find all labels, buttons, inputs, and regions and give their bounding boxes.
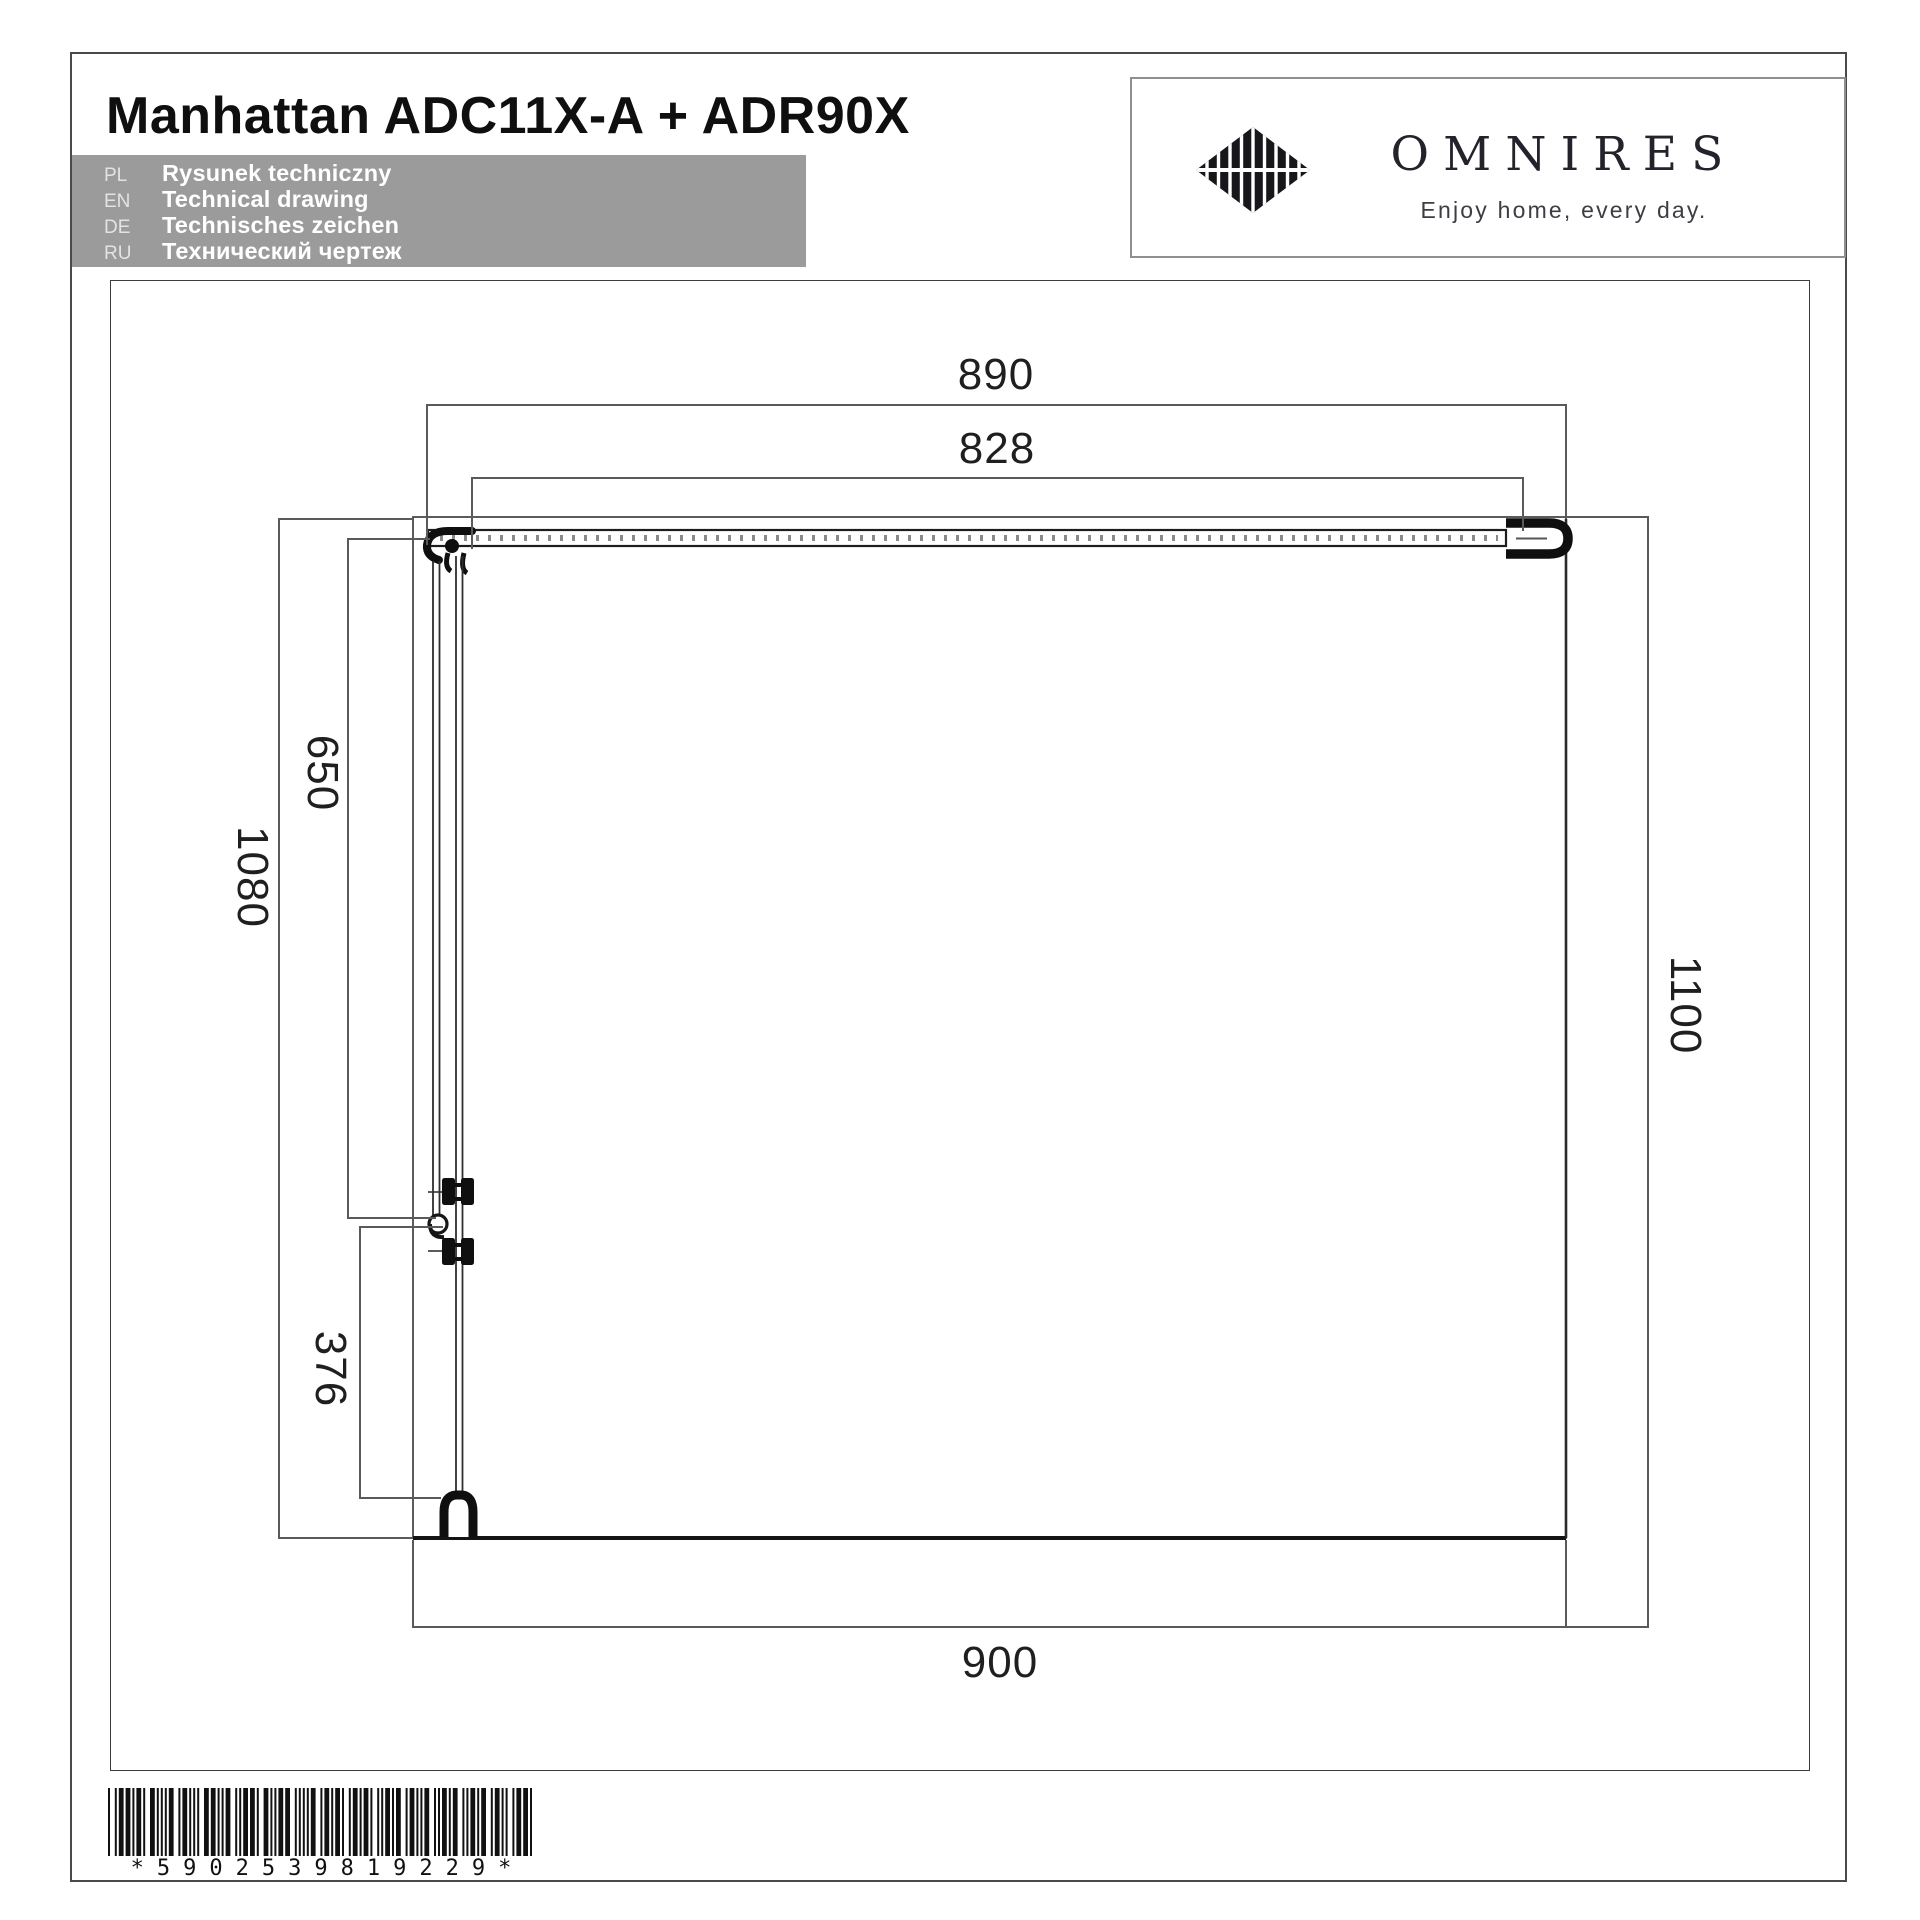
dim-900-line bbox=[413, 1540, 1566, 1627]
dim-376-line bbox=[360, 1227, 443, 1498]
dimension-lines bbox=[279, 405, 1648, 1627]
door-hinge-upper bbox=[428, 1178, 474, 1205]
dimension-bottom: 900 bbox=[900, 1638, 1100, 1688]
enclosure-footprint bbox=[413, 517, 1566, 1538]
door-foot bbox=[444, 1495, 473, 1537]
track-end-bracket bbox=[1506, 523, 1568, 554]
sliding-door-track bbox=[428, 530, 1506, 546]
technical-drawing-sheet: Manhattan ADC11X-A + ADR90X PL Rysunek t… bbox=[0, 0, 1920, 1920]
dim-650-line bbox=[348, 539, 436, 1218]
barcode bbox=[108, 1788, 532, 1856]
dimension-left-full: 1080 bbox=[227, 777, 277, 977]
dimension-top-outer: 890 bbox=[896, 350, 1096, 400]
dimension-left-lower: 376 bbox=[305, 1269, 355, 1469]
barcode-digits: *5902539819229* bbox=[98, 1856, 544, 1881]
dimension-right-full: 1100 bbox=[1660, 905, 1710, 1105]
dim-1100-line bbox=[1566, 517, 1648, 1627]
door-hinge-lower bbox=[428, 1238, 474, 1265]
dimension-top-inner: 828 bbox=[897, 424, 1097, 474]
enclosure-line-art bbox=[0, 0, 1920, 1920]
side-glass-panels bbox=[433, 556, 463, 1496]
dimension-left-upper: 650 bbox=[297, 673, 347, 873]
